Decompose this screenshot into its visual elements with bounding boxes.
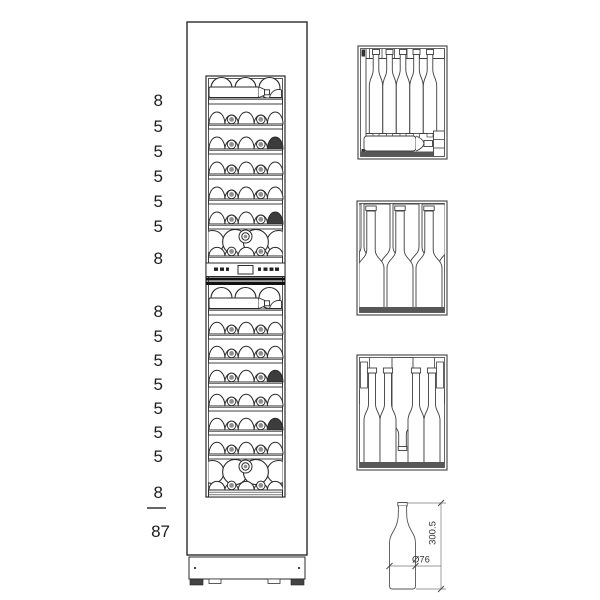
capacity-count: 5 [154, 447, 163, 466]
bottom-rail [209, 490, 283, 497]
capacity-count: 5 [154, 351, 163, 370]
total-capacity-value: 87 [151, 522, 170, 541]
capacity-count: 5 [154, 192, 163, 211]
capacity-count: 5 [154, 167, 163, 186]
capacity-count: 5 [154, 375, 163, 394]
bottle-height-dimension: 300.5 [428, 521, 439, 545]
generated-line-art: 855555885555558 [154, 22, 448, 592]
capacity-count: 5 [154, 117, 163, 136]
panel-button[interactable] [220, 268, 224, 271]
cabinet-base [189, 557, 305, 585]
capacity-count: 8 [154, 483, 163, 502]
wine-cabinet-front-view [187, 22, 307, 585]
bottle-diameter-dimension: Ø76 [412, 555, 430, 566]
wine-cabinet-spec-sheet: 855555885555558 87 300.5 Ø76 [0, 0, 600, 600]
panel-button[interactable] [214, 268, 218, 271]
shelf-detail-interleaved-bottles [335, 201, 448, 315]
panel-button[interactable] [275, 268, 279, 271]
control-panel [206, 263, 285, 277]
capacity-count: 5 [154, 399, 163, 418]
capacity-count: 5 [154, 423, 163, 442]
capacity-count: 5 [154, 327, 163, 346]
panel-button[interactable] [258, 268, 261, 271]
shelf-detail-mixed-bottles [357, 355, 447, 470]
panel-button[interactable] [226, 268, 229, 271]
capacity-count: 5 [154, 142, 163, 161]
panel-button[interactable] [264, 268, 268, 271]
panel-button[interactable] [270, 268, 274, 271]
capacity-count: 5 [154, 217, 163, 236]
capacity-column: 855555885555558 [154, 91, 163, 502]
shelf-detail-standing-bottles [358, 46, 447, 159]
capacity-count: 8 [154, 91, 163, 110]
product-spec-drawing: 855555885555558 87 300.5 Ø76 [0, 0, 600, 600]
capacity-count: 8 [154, 249, 163, 268]
capacity-count: 8 [154, 302, 163, 321]
temperature-display[interactable] [238, 266, 253, 275]
bottle-dimension-drawing [387, 500, 447, 592]
